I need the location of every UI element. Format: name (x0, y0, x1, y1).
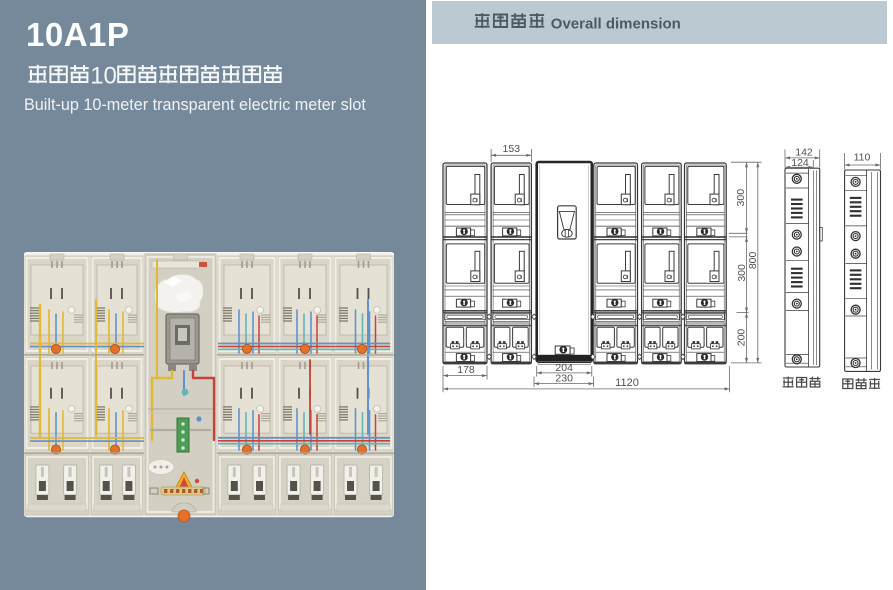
svg-text:Overall dimension: Overall dimension (551, 16, 681, 33)
svg-text:200: 200 (736, 329, 748, 347)
svg-text:110: 110 (854, 152, 871, 164)
svg-text:178: 178 (457, 364, 475, 376)
svg-text:300: 300 (735, 189, 747, 207)
svg-text:800: 800 (747, 251, 759, 269)
svg-text:124: 124 (791, 157, 809, 169)
svg-text:10: 10 (90, 63, 117, 90)
svg-text:230: 230 (555, 373, 573, 385)
svg-text:1120: 1120 (615, 377, 639, 389)
svg-text:153: 153 (503, 143, 521, 155)
